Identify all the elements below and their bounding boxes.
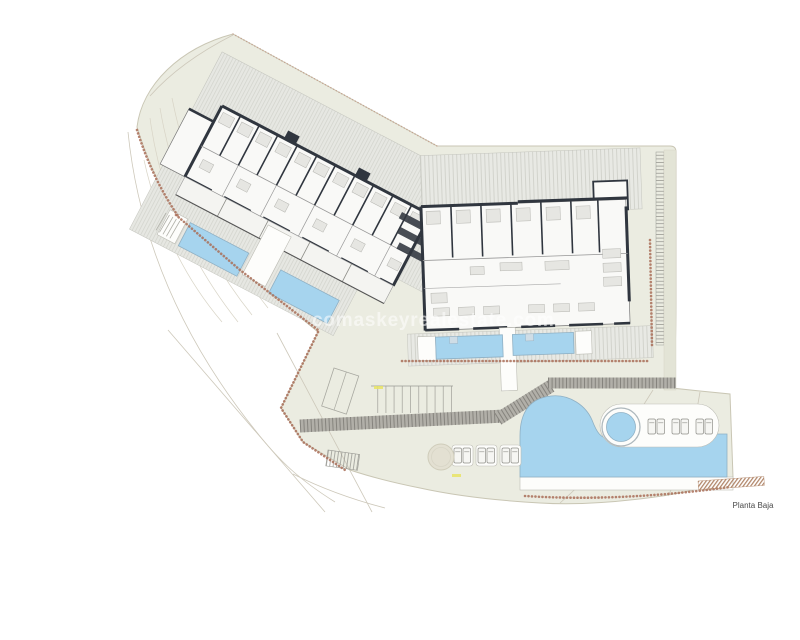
terrace-pool-1 bbox=[435, 335, 503, 359]
east-boundary-band bbox=[664, 150, 676, 390]
terrace-pool-2 bbox=[512, 332, 574, 355]
utility-mark-yellow bbox=[452, 474, 461, 477]
building-b bbox=[401, 148, 654, 394]
utility-mark-yellow bbox=[374, 386, 383, 389]
site-plan-drawing: comaskeyrealestate.com Planta Baja bbox=[0, 0, 800, 640]
parking-stalls-row bbox=[371, 386, 453, 413]
pool-steps-icon bbox=[525, 334, 533, 341]
round-pool bbox=[607, 413, 636, 442]
pool-terrace-platform-1 bbox=[417, 336, 436, 361]
floor-label: Planta Baja bbox=[733, 501, 774, 510]
east-stepped-path bbox=[656, 152, 664, 345]
pool-terrace-platform-2 bbox=[575, 331, 592, 355]
pool-steps-icon bbox=[449, 336, 457, 343]
main-pool-zone bbox=[520, 396, 733, 490]
watermark-text: comaskeyrealestate.com bbox=[312, 310, 555, 331]
sun-loungers-west bbox=[452, 445, 521, 466]
site-plan-page: comaskeyrealestate.com Planta Baja bbox=[0, 0, 800, 640]
